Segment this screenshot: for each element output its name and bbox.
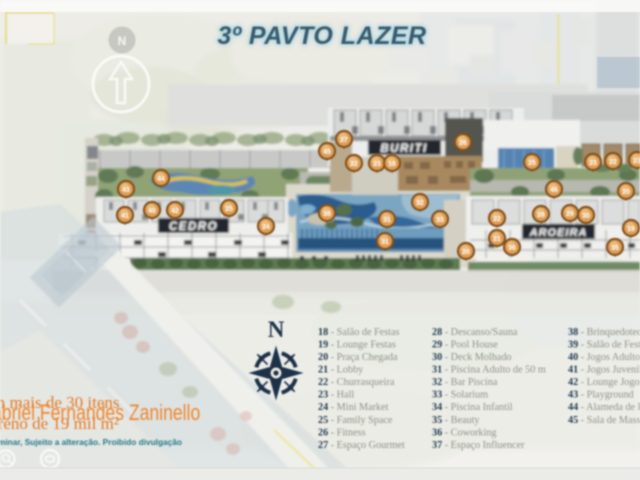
svg-text:42: 42 — [171, 208, 179, 215]
svg-text:3º PAVTO LAZER: 3º PAVTO LAZER — [217, 22, 426, 50]
svg-text:N: N — [118, 34, 127, 48]
svg-text:26: 26 — [459, 140, 467, 147]
svg-text:28 - Descanso/Sauna: 28 - Descanso/Sauna — [432, 327, 518, 338]
svg-text:32: 32 — [416, 200, 424, 207]
svg-text:41 - Jogos Juvenil: 41 - Jogos Juvenil — [568, 365, 640, 376]
svg-text:20: 20 — [622, 189, 630, 196]
svg-text:36: 36 — [508, 245, 516, 252]
svg-text:36 - Coworking: 36 - Coworking — [432, 427, 497, 438]
svg-text:24 - Mini Market: 24 - Mini Market — [318, 402, 389, 413]
svg-text:38: 38 — [323, 211, 331, 218]
svg-text:27: 27 — [340, 137, 348, 144]
svg-text:33: 33 — [436, 217, 444, 224]
svg-text:45: 45 — [323, 149, 331, 156]
svg-text:21: 21 — [633, 158, 640, 165]
svg-text:34 - Piscina Infantil: 34 - Piscina Infantil — [432, 402, 513, 413]
svg-text:CEDRO: CEDRO — [169, 221, 218, 233]
svg-text:22: 22 — [350, 161, 358, 168]
svg-text:18 - Salão de Festas: 18 - Salão de Festas — [318, 327, 400, 338]
svg-text:35 - Beauty: 35 - Beauty — [432, 415, 480, 426]
svg-text:46: 46 — [550, 187, 558, 194]
svg-text:BURITI: BURITI — [380, 143, 427, 155]
svg-text:minar, Sujeito a alteração. Pr: minar, Sujeito a alteração. Proibido div… — [0, 437, 182, 447]
svg-text:29 - Pool House: 29 - Pool House — [432, 340, 498, 351]
svg-text:40: 40 — [148, 208, 156, 215]
svg-text:31 - Piscina Adulto de 50 m: 31 - Piscina Adulto de 50 m — [432, 365, 546, 376]
svg-text:18: 18 — [388, 161, 396, 168]
svg-text:37 - Espaço Influencer: 37 - Espaço Influencer — [432, 440, 525, 451]
svg-text:42 - Lounge Jogos: 42 - Lounge Jogos — [568, 377, 640, 388]
svg-text:25: 25 — [528, 160, 536, 167]
svg-text:20: 20 — [462, 249, 470, 256]
svg-text:26 - Fitness: 26 - Fitness — [318, 427, 366, 438]
svg-text:28: 28 — [537, 212, 545, 219]
svg-text:23 - Hall: 23 - Hall — [318, 390, 354, 401]
svg-text:25: 25 — [225, 206, 233, 213]
svg-text:38 - Brinquedoteca: 38 - Brinquedoteca — [568, 327, 640, 338]
svg-text:32 - Bar Piscina: 32 - Bar Piscina — [432, 377, 498, 388]
svg-text:24: 24 — [262, 224, 270, 231]
svg-text:19: 19 — [627, 226, 635, 233]
svg-text:19 - Lounge Festas: 19 - Lounge Festas — [318, 340, 396, 351]
svg-text:45 - Sala de Massagem: 45 - Sala de Massagem — [568, 415, 640, 426]
svg-text:AROEIRA: AROEIRA — [529, 227, 588, 239]
svg-text:29: 29 — [566, 211, 574, 218]
svg-text:abriel Fernandes Zaninello: abriel Fernandes Zaninello — [0, 401, 200, 425]
svg-text:39 - Salão de Festas: 39 - Salão de Festas — [568, 340, 640, 351]
svg-text:44 - Alameda de Pinus: 44 - Alameda de Pinus — [568, 402, 640, 413]
svg-text:43: 43 — [122, 187, 130, 194]
svg-text:30 - Deck Molhado: 30 - Deck Molhado — [432, 352, 512, 363]
svg-text:33 - Solarium: 33 - Solarium — [432, 390, 488, 401]
svg-text:31: 31 — [383, 217, 391, 224]
svg-text:21: 21 — [493, 236, 501, 243]
svg-text:N: N — [268, 317, 285, 342]
svg-text:27 - Espaço Gourmet: 27 - Espaço Gourmet — [318, 440, 405, 451]
svg-text:35: 35 — [611, 245, 619, 252]
svg-text:41: 41 — [121, 213, 129, 220]
svg-text:31: 31 — [381, 239, 389, 246]
svg-text:22: 22 — [609, 159, 617, 166]
svg-text:40 - Jogos Adulto: 40 - Jogos Adulto — [568, 352, 640, 363]
svg-text:25 - Family Space: 25 - Family Space — [318, 415, 393, 426]
svg-text:22 - Churrasqueira: 22 - Churrasqueira — [318, 377, 395, 388]
svg-text:23: 23 — [373, 161, 381, 168]
svg-text:23: 23 — [589, 160, 597, 167]
svg-text:30: 30 — [582, 213, 590, 220]
svg-text:22: 22 — [493, 216, 501, 223]
svg-text:21 - Lobby: 21 - Lobby — [318, 365, 364, 376]
svg-text:43 - Playground: 43 - Playground — [568, 390, 634, 401]
svg-text:44: 44 — [157, 176, 165, 183]
svg-text:20 - Praça Chegada: 20 - Praça Chegada — [318, 352, 398, 363]
